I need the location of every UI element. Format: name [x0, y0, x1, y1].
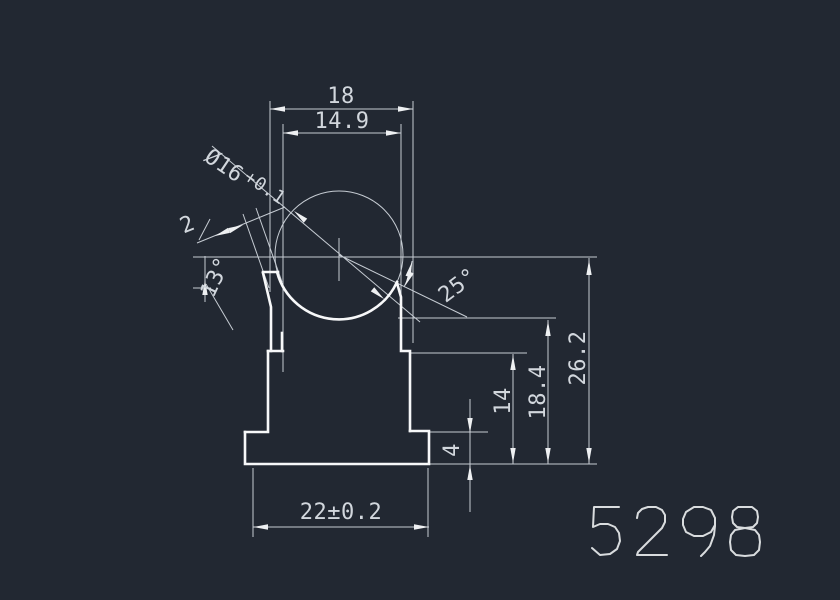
dim-text-bore-tolerance: +0.1 — [240, 166, 289, 209]
dimension-arrowhead — [414, 524, 429, 529]
dimension-arrowhead — [586, 448, 591, 463]
part-number-digit — [637, 507, 667, 555]
dimension-arrowhead — [510, 355, 515, 370]
dimension-arrowhead — [386, 130, 401, 135]
dim-text-height-low: 14 — [491, 387, 516, 415]
extension-lines — [253, 101, 597, 537]
bore-circle — [193, 191, 597, 319]
profile-base — [245, 431, 429, 464]
dimension-arrowhead — [215, 228, 230, 236]
part-number — [592, 507, 760, 556]
profile-left-wall — [245, 351, 268, 432]
dim-text-width-base: 22±0.2 — [300, 500, 382, 525]
oblique-tick — [199, 219, 210, 240]
profile-outline — [245, 272, 429, 464]
dimension-arrowhead — [586, 260, 591, 275]
dim-text-height-total: 26.2 — [566, 331, 591, 386]
dim-text-angle-left: 13° — [196, 253, 236, 301]
dimension-arrowhead — [405, 271, 414, 286]
part-number-digit — [730, 507, 760, 556]
dim-text-height-mid: 18.4 — [526, 365, 551, 420]
dim-text-lip-thickness: 2 — [177, 211, 199, 239]
dimension-arrowhead — [270, 106, 285, 111]
dim-text-width-inner: 14.9 — [315, 109, 370, 134]
dimension-arrowhead — [398, 106, 413, 111]
dim-text-base-height: 4 — [440, 443, 465, 457]
dim-text-angle-right: 25° — [434, 263, 482, 308]
dimension-arrowhead — [283, 130, 298, 135]
lip-dim-line — [197, 207, 285, 243]
part-number-digit — [683, 507, 715, 556]
cad-canvas: 18 14.9 22±0.2 4 14 18.4 26.2 Ø16 +0.1 2… — [0, 0, 840, 600]
dimension-arrowhead — [467, 465, 472, 480]
dimension-arrowhead — [545, 448, 550, 463]
part-number-digit — [592, 507, 620, 555]
dimension-arrowhead — [253, 524, 268, 529]
dimension-arrowhead — [545, 321, 550, 336]
dim-text-width-top: 18 — [327, 84, 355, 109]
technical-drawing: 18 14.9 22±0.2 4 14 18.4 26.2 Ø16 +0.1 2… — [0, 0, 840, 600]
dimension-arrowhead — [467, 418, 472, 433]
profile-right-wall — [397, 283, 410, 431]
dimension-texts: 18 14.9 22±0.2 4 14 18.4 26.2 Ø16 +0.1 2… — [177, 84, 591, 525]
dimension-arrowhead — [510, 448, 515, 463]
dimension-arrowhead — [228, 225, 243, 233]
dimension-arrowhead — [371, 287, 384, 299]
